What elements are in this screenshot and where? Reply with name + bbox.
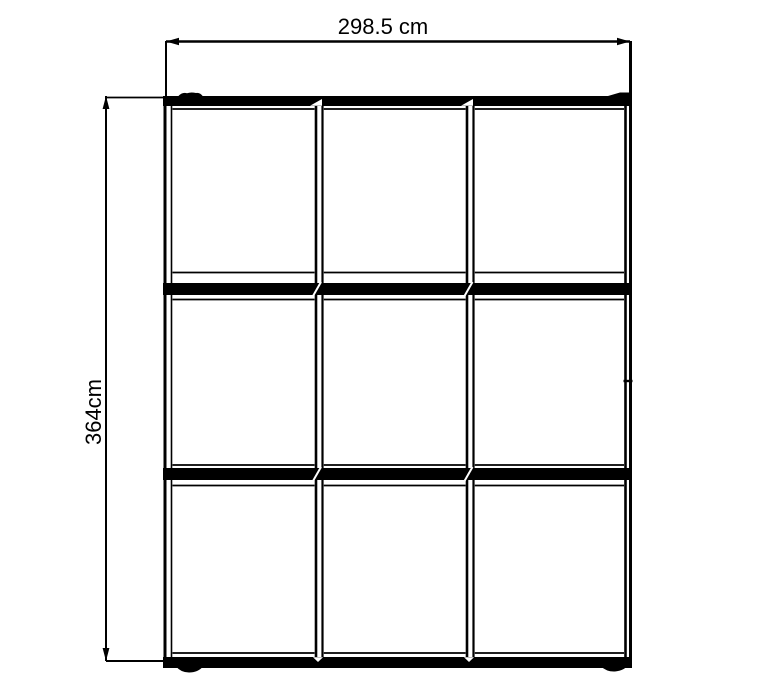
shelf-bar-1 — [163, 283, 631, 295]
bottom-rail — [163, 657, 631, 668]
top-rail — [163, 96, 631, 106]
height-dimension-label: 364cm — [81, 379, 106, 445]
technical-drawing: 298.5 cm 364cm — [0, 0, 774, 690]
drawing-svg: 298.5 cm 364cm — [0, 0, 774, 690]
width-dimension-label: 298.5 cm — [338, 14, 429, 39]
shelf-bar-2 — [163, 468, 631, 480]
